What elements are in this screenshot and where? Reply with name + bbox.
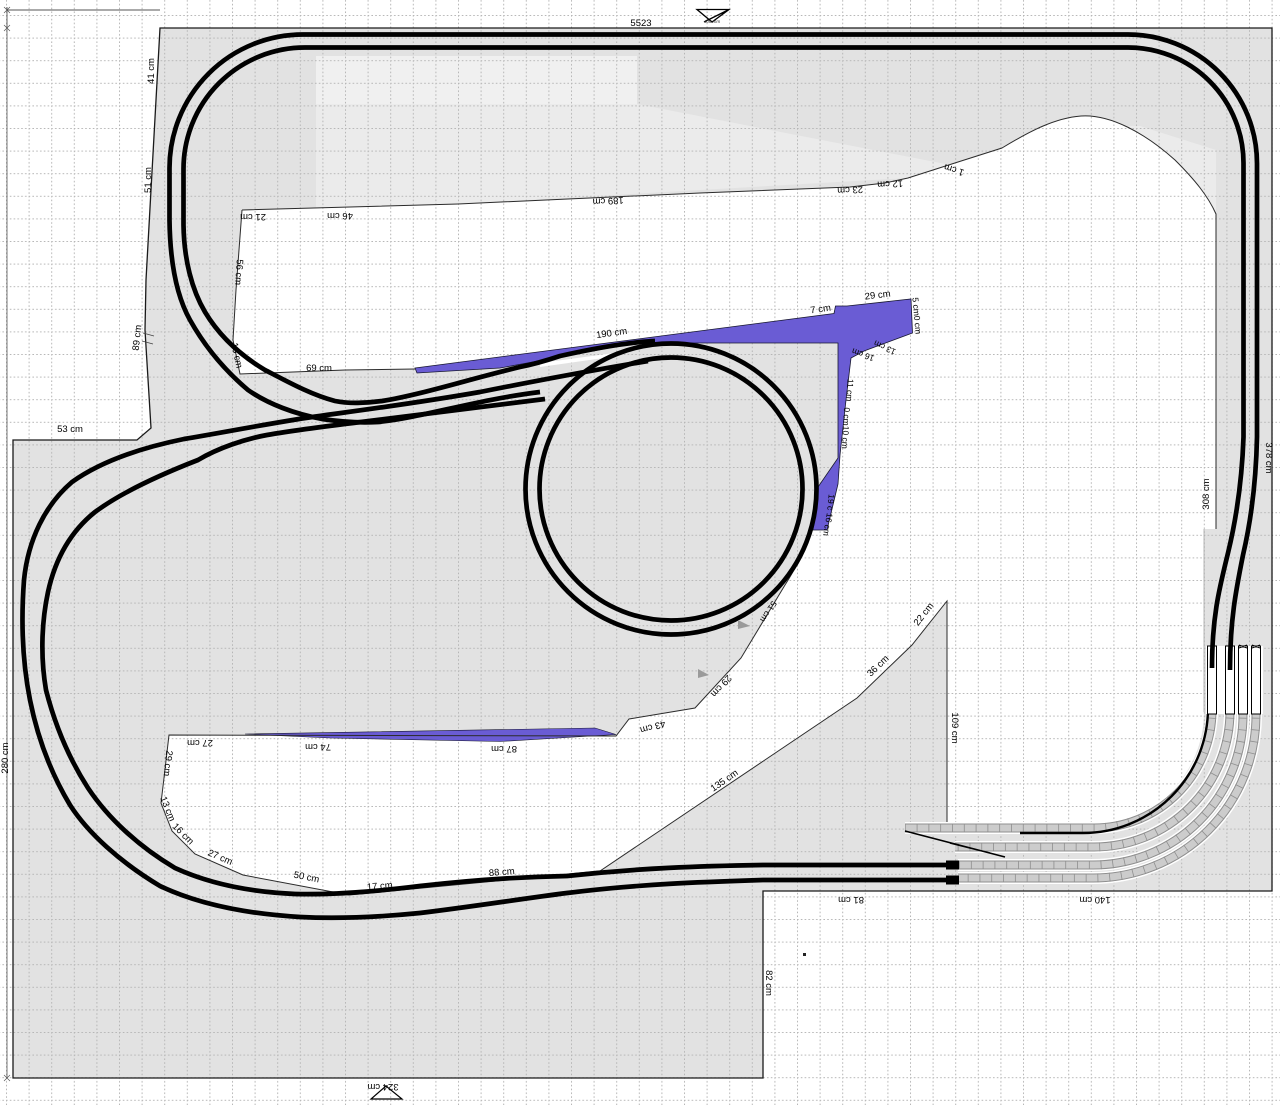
svg-text:17 cm: 17 cm [366,880,393,893]
svg-text:109 cm: 109 cm [949,712,960,743]
svg-text:140 cm: 140 cm [1079,894,1110,905]
svg-text:12 cm: 12 cm [877,177,903,189]
svg-text:11 cm: 11 cm [844,379,855,402]
svg-text:324 cm: 324 cm [367,1081,398,1092]
svg-text:308 cm: 308 cm [1201,478,1212,509]
svg-text:87 cm: 87 cm [491,743,517,754]
svg-text:406 mm: 406 mm [704,19,721,24]
svg-text:378 cm: 378 cm [1263,442,1274,473]
svg-text:5523: 5523 [630,18,651,29]
svg-text:46 cm: 46 cm [327,210,353,221]
svg-text:23 cm: 23 cm [837,183,863,195]
svg-text:69 cm: 69 cm [306,363,332,374]
svg-text:27 cm: 27 cm [187,737,213,748]
svg-text:82 cm: 82 cm [763,970,774,996]
svg-text:81 cm: 81 cm [838,894,864,905]
svg-text:41 cm: 41 cm [146,58,157,84]
svg-text:280 cm: 280 cm [0,742,11,773]
svg-text:56 cm: 56 cm [232,259,245,286]
svg-text:21 cm: 21 cm [240,211,266,222]
svg-text:88 cm: 88 cm [488,866,515,879]
svg-text:53 cm: 53 cm [57,424,83,435]
svg-text:19 c: 19 c [825,494,836,512]
svg-text:189 cm: 189 cm [592,194,624,207]
svg-text:74 cm: 74 cm [305,741,331,752]
svg-text:51 cm: 51 cm [143,167,154,193]
